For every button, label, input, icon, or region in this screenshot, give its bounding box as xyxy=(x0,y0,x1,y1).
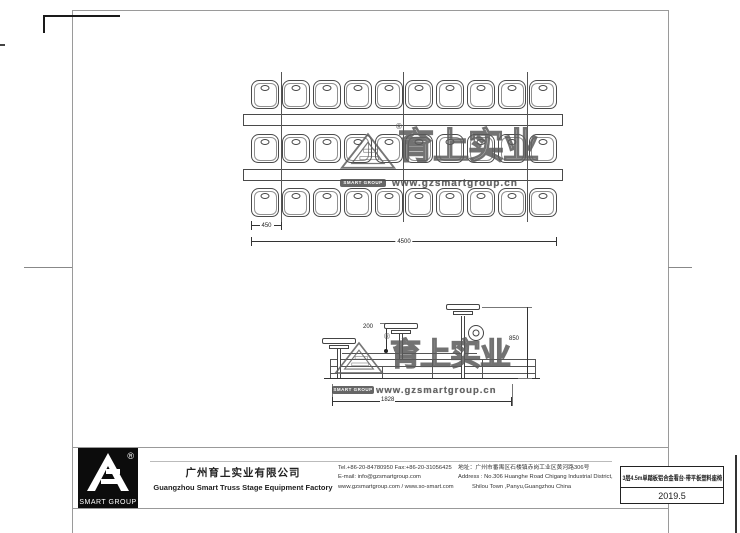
seat xyxy=(344,188,372,217)
drawing-title-row: 3层4.5m单踏板铝合金看台-带平板塑料座椅 xyxy=(621,467,723,488)
sheet-frame-top xyxy=(72,10,668,11)
extension-line xyxy=(512,384,513,406)
seat xyxy=(436,134,464,163)
seat-post xyxy=(337,349,341,378)
seat-row xyxy=(251,188,557,217)
title-block-top-line xyxy=(72,447,668,448)
address-en-line2: Shilou Town ,Panyu,Guangzhou China xyxy=(458,483,616,492)
sheet-frame-left xyxy=(72,10,73,533)
seat xyxy=(405,188,433,217)
dimension-label: 200 xyxy=(362,324,374,331)
seat xyxy=(251,134,279,163)
dimension-height-line xyxy=(527,307,528,378)
triangle-logo-icon xyxy=(86,452,130,492)
dimension-label: 850 xyxy=(508,336,520,343)
seat xyxy=(344,134,372,163)
seat-bracket xyxy=(453,311,473,315)
seat xyxy=(282,80,310,109)
seat-side-profile xyxy=(446,304,480,310)
seat xyxy=(529,80,557,109)
seat-bracket xyxy=(329,345,349,349)
seat xyxy=(498,80,526,109)
deck-line xyxy=(342,353,477,354)
seat xyxy=(467,134,495,163)
seat xyxy=(344,80,372,109)
address-cn: 地址：广州市番禺区石楼镇赤岗工业区黄河路306号 xyxy=(458,464,616,473)
dimension-arrow xyxy=(384,349,388,353)
title-block-mid-line xyxy=(150,461,612,462)
frame-upright xyxy=(535,359,536,378)
crop-mark-top-left-vertical xyxy=(43,15,45,33)
seat xyxy=(375,80,403,109)
center-mark-left xyxy=(24,267,72,268)
seat xyxy=(375,188,403,217)
seat xyxy=(405,134,433,163)
seat-side-profile xyxy=(322,338,356,344)
seat xyxy=(529,134,557,163)
edge-tick-left xyxy=(0,44,5,46)
seat xyxy=(436,80,464,109)
drawing-title-box: 3层4.5m单踏板铝合金看台-带平板塑料座椅 2019.5 xyxy=(620,466,724,504)
dimension-label: 4500 xyxy=(395,238,412,246)
drawing-sheet: 450 4500 200 xyxy=(0,0,740,533)
seat xyxy=(251,188,279,217)
registered-mark: ® xyxy=(127,451,134,461)
seat-post xyxy=(399,334,403,359)
frame-upright xyxy=(330,359,331,378)
seat xyxy=(467,80,495,109)
center-mark-right xyxy=(668,267,692,268)
frame-upright xyxy=(432,359,433,378)
seat xyxy=(529,188,557,217)
sheet-frame-right xyxy=(668,10,669,533)
seat xyxy=(251,80,279,109)
seat xyxy=(282,134,310,163)
seat-row xyxy=(251,80,557,109)
company-name-block: 广州育上实业有限公司 Guangzhou Smart Truss Stage E… xyxy=(150,465,336,492)
extension-line xyxy=(482,307,532,308)
dimension-label: 1828 xyxy=(380,397,395,404)
seat-bracket xyxy=(391,330,411,334)
websites: www.gzsmartgroup.com / www.so-smart.com xyxy=(338,483,456,492)
base-line xyxy=(324,378,540,379)
seat-row xyxy=(251,134,557,163)
seat xyxy=(498,134,526,163)
seat xyxy=(282,188,310,217)
wheel-detail xyxy=(468,325,484,341)
seat xyxy=(498,188,526,217)
address-block: 地址：广州市番禺区石楼镇赤岗工业区黄河路306号 Address : No.30… xyxy=(458,464,616,492)
frame-upright xyxy=(382,366,383,378)
plan-view-drawing: 450 4500 xyxy=(243,78,565,253)
seat xyxy=(467,188,495,217)
dimension-total-width: 4500 xyxy=(251,241,557,242)
tel-fax: Tel.+86-20-84780950 Fax:+86-20-31056425 xyxy=(338,464,456,473)
dimension-depth-line xyxy=(332,401,512,402)
seat xyxy=(313,134,341,163)
drawing-title: 3层4.5m单踏板铝合金看台-带平板塑料座椅 xyxy=(622,472,722,482)
company-name-cn: 广州育上实业有限公司 xyxy=(150,465,336,480)
seat xyxy=(436,188,464,217)
drawing-date: 2019.5 xyxy=(621,488,723,503)
email: E-mail: info@gzsmartgroup.com xyxy=(338,473,456,482)
company-name-en: Guangzhou Smart Truss Stage Equipment Fa… xyxy=(150,483,336,492)
address-en-line1: Address : No.306 Huanghe Road Chigang In… xyxy=(458,473,616,482)
company-logo: ® SMART GROUP xyxy=(78,448,138,508)
seat-side-profile xyxy=(384,323,418,329)
frame-upright xyxy=(482,359,483,378)
contact-info-block: Tel.+86-20-84780950 Fax:+86-20-31056425 … xyxy=(338,464,456,492)
dimension-seat-pitch: 450 xyxy=(251,225,282,226)
crop-mark-top-left xyxy=(43,15,120,17)
seat xyxy=(405,80,433,109)
seat-post xyxy=(461,316,465,378)
logo-caption: SMART GROUP xyxy=(78,499,138,506)
extension-line xyxy=(518,378,532,379)
side-view-drawing: 200 850 1828 xyxy=(322,300,572,415)
seat xyxy=(313,188,341,217)
edge-mark-bottom-right xyxy=(735,455,737,533)
seat xyxy=(313,80,341,109)
title-block-bottom-line xyxy=(72,508,668,509)
seat xyxy=(375,134,403,163)
dimension-label: 450 xyxy=(259,222,273,230)
